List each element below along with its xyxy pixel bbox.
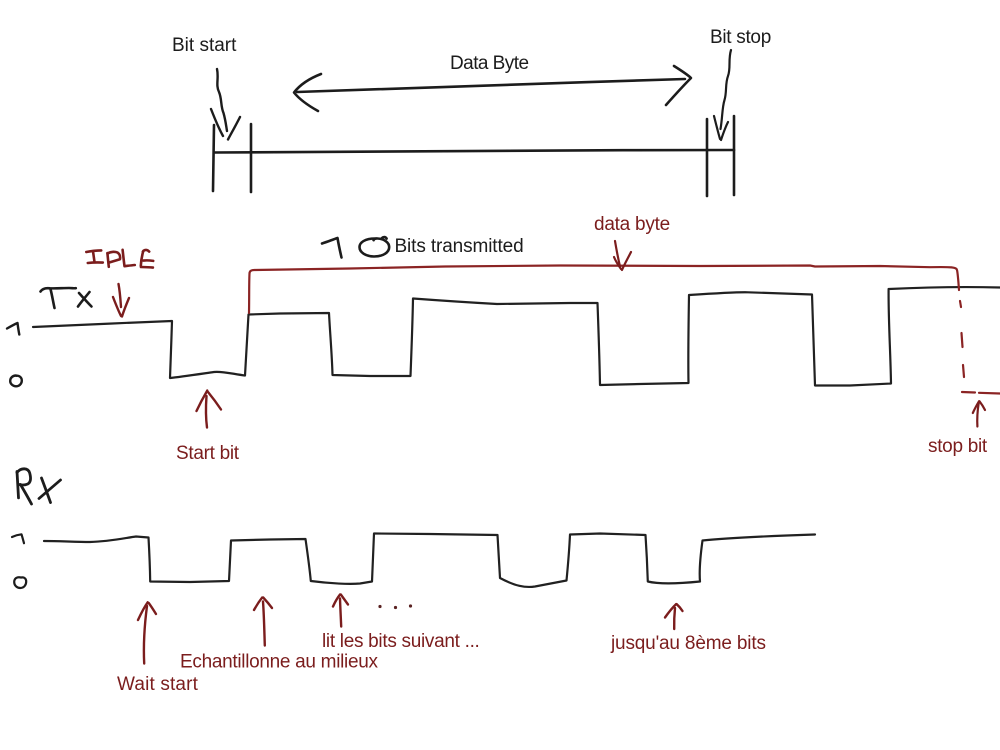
svg-text:Data Byte: Data Byte [450,53,528,74]
svg-text:data byte: data byte [594,214,670,235]
svg-text:lit les bits suivant ...: lit les bits suivant ... [322,631,480,652]
svg-text:jusqu'au 8ème bits: jusqu'au 8ème bits [610,633,766,654]
svg-text:Wait start: Wait start [117,674,199,695]
svg-text:Start bit: Start bit [176,443,240,464]
svg-text:Bit start: Bit start [172,35,237,56]
svg-text:Echantillonne au milieux: Echantillonne au milieux [180,652,378,673]
svg-text:Bit stop: Bit stop [710,27,771,48]
svg-text:stop bit: stop bit [928,436,988,457]
svg-text:Bits transmitted: Bits transmitted [395,236,524,257]
